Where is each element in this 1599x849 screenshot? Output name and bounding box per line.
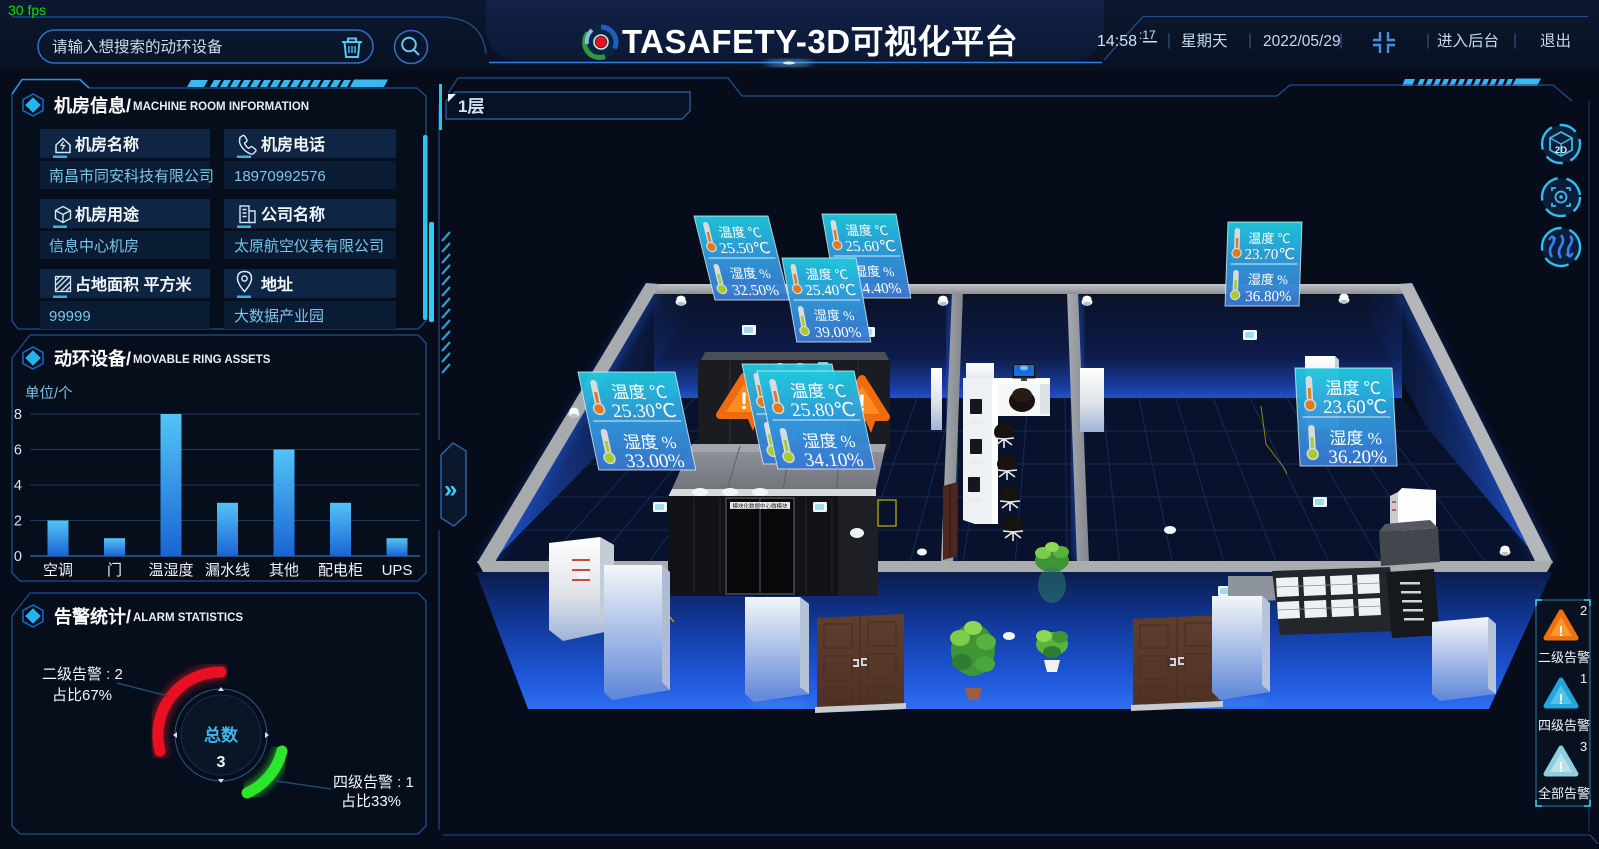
svg-text:漏水线: 漏水线 (205, 562, 250, 579)
svg-text:其他: 其他 (269, 562, 299, 579)
svg-text:请输入想搜索的动环设备: 请输入想搜索的动环设备 (52, 38, 223, 56)
svg-text:!: ! (1559, 691, 1564, 708)
svg-text:TASAFETY-3D可视化平台: TASAFETY-3D可视化平台 (622, 23, 1018, 60)
svg-text:25.80℃: 25.80℃ (789, 400, 857, 421)
svg-text:配电柜: 配电柜 (318, 562, 363, 579)
svg-text:占地面积 平方米: 占地面积 平方米 (75, 275, 192, 294)
svg-text:25.50℃: 25.50℃ (718, 240, 773, 257)
svg-text:机房电话: 机房电话 (261, 135, 325, 154)
svg-text:32.50%: 32.50% (730, 282, 781, 299)
svg-text:34.10%: 34.10% (803, 450, 866, 471)
svg-text:模块化数据中心微模块: 模块化数据中心微模块 (732, 502, 788, 510)
svg-text:8: 8 (14, 407, 22, 423)
svg-text:30 fps: 30 fps (8, 2, 46, 18)
svg-text:|: | (1248, 32, 1252, 49)
svg-text:1层: 1层 (458, 97, 484, 116)
svg-text:!: ! (1559, 759, 1564, 776)
svg-text:36.20%: 36.20% (1328, 447, 1388, 468)
svg-text:MOVABLE RING ASSETS: MOVABLE RING ASSETS (133, 354, 271, 366)
svg-text:ALARM STATISTICS: ALARM STATISTICS (133, 612, 243, 624)
svg-text:3: 3 (1580, 739, 1587, 754)
svg-text:0: 0 (14, 549, 22, 565)
svg-text:2: 2 (14, 514, 22, 530)
svg-text:温度 ℃: 温度 ℃ (1325, 379, 1381, 398)
svg-text:机房用途: 机房用途 (75, 205, 140, 224)
svg-text:UPS: UPS (382, 562, 413, 579)
svg-text:1: 1 (1580, 671, 1587, 686)
svg-text:信息中心机房: 信息中心机房 (49, 238, 139, 255)
svg-text:3: 3 (217, 754, 226, 771)
svg-text:6: 6 (14, 443, 22, 459)
svg-text:二级告警: 二级告警 (1538, 650, 1590, 665)
svg-text:四级告警: 四级告警 (1538, 718, 1590, 733)
svg-text:温度 ℃: 温度 ℃ (1248, 231, 1291, 246)
svg-text:温度 ℃: 温度 ℃ (610, 383, 669, 402)
svg-text:23.60℃: 23.60℃ (1322, 397, 1387, 418)
svg-text:MACHINE ROOM INFORMATION: MACHINE ROOM INFORMATION (133, 101, 309, 113)
svg-text:地址: 地址 (261, 275, 293, 294)
svg-text:机房信息/: 机房信息/ (54, 95, 131, 116)
svg-text:温度 ℃: 温度 ℃ (844, 223, 889, 238)
svg-text:湿度 %: 湿度 % (1248, 272, 1289, 287)
svg-text:|: | (1339, 32, 1343, 49)
svg-text:太原航空仪表有限公司: 太原航空仪表有限公司 (234, 238, 384, 255)
svg-text:33.00%: 33.00% (624, 451, 687, 472)
svg-text:二级告警 : 2: 二级告警 : 2 (42, 666, 123, 683)
svg-text:总数: 总数 (204, 725, 239, 745)
svg-text:告警统计/: 告警统计/ (54, 606, 131, 627)
svg-text:25.60℃: 25.60℃ (844, 239, 897, 255)
svg-text:99999: 99999 (49, 308, 91, 325)
svg-text:25.30℃: 25.30℃ (610, 401, 678, 422)
svg-text:39.00%: 39.00% (814, 325, 863, 341)
svg-text:14:58: 14:58 (1097, 33, 1137, 50)
svg-text:»: » (444, 476, 457, 503)
svg-text:动环设备/: 动环设备/ (54, 348, 131, 369)
svg-text:4: 4 (14, 478, 22, 494)
svg-text:2: 2 (1580, 603, 1587, 618)
svg-text:|: | (1167, 32, 1171, 49)
svg-text:公司名称: 公司名称 (261, 205, 325, 224)
svg-text:2022/05/29: 2022/05/29 (1263, 33, 1341, 50)
svg-text:空调: 空调 (43, 562, 73, 579)
svg-text:36.80%: 36.80% (1245, 289, 1292, 305)
svg-text:23.70℃: 23.70℃ (1244, 247, 1295, 263)
svg-text:温度 ℃: 温度 ℃ (717, 225, 763, 240)
svg-text:!: ! (1559, 623, 1564, 640)
svg-text:湿度 %: 湿度 % (622, 433, 678, 452)
svg-text:湿度 %: 湿度 % (1329, 429, 1382, 448)
svg-text:25.40℃: 25.40℃ (804, 283, 857, 299)
svg-text:全部告警: 全部告警 (1538, 786, 1590, 801)
svg-text:机房名称: 机房名称 (75, 135, 139, 154)
svg-text:2D: 2D (1555, 145, 1567, 156)
svg-text:湿度 %: 湿度 % (813, 308, 856, 323)
svg-text::17: :17 (1139, 28, 1156, 42)
svg-text:退出: 退出 (1540, 32, 1571, 50)
svg-text:大数据产业园: 大数据产业园 (234, 308, 324, 325)
svg-text:18970992576: 18970992576 (234, 168, 326, 185)
svg-text:湿度 %: 湿度 % (801, 432, 857, 451)
svg-text:|: | (1513, 32, 1517, 49)
svg-text:进入后台: 进入后台 (1437, 32, 1499, 50)
svg-text:温湿度: 温湿度 (148, 562, 193, 579)
svg-text:温度 ℃: 温度 ℃ (789, 382, 848, 401)
svg-text:占比67%: 占比67% (52, 687, 112, 704)
svg-text:占比33%: 占比33% (341, 793, 401, 810)
svg-text:|: | (1426, 32, 1430, 49)
svg-text:南昌市同安科技有限公司: 南昌市同安科技有限公司 (49, 168, 214, 185)
svg-text:门: 门 (107, 562, 122, 579)
svg-text:星期天: 星期天 (1181, 32, 1228, 50)
svg-text:四级告警 : 1: 四级告警 : 1 (333, 774, 414, 791)
svg-text:湿度 %: 湿度 % (728, 266, 772, 281)
svg-text:温度 ℃: 温度 ℃ (804, 267, 849, 282)
svg-text:单位/个: 单位/个 (25, 385, 73, 402)
